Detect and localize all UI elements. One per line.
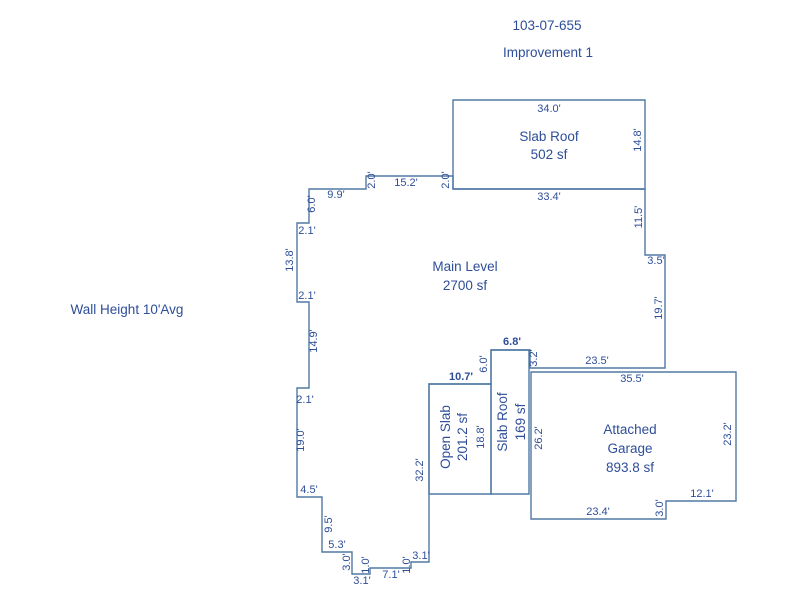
dim-label-6-8: 6.8' [503,336,521,348]
dim-label-5-3: 5.3' [328,539,345,551]
area-label-garage-name-1: Attached [603,422,656,437]
dim-label-1-0-b: 1.0' [401,556,413,573]
area-label-slab-roof-mid-sf: 169 sf [513,403,528,440]
dim-label-15-2: 15.2' [394,177,418,189]
dim-label-3-2: 3.2' [528,349,540,366]
improvement-title: Improvement 1 [503,45,593,60]
main-level-outline [297,176,665,574]
dim-label-3-5: 3.5' [647,255,664,267]
dim-label-23-4: 23.4' [586,506,610,518]
dim-label-32-2: 32.2' [414,458,426,482]
dim-label-18-8: 18.8' [475,425,487,449]
dim-label-26-2: 26.2' [533,426,545,450]
area-label-slab-roof-top-name: Slab Roof [519,129,579,144]
dim-label-3-1-b: 3.1' [412,550,429,562]
parcel-number: 103-07-655 [512,18,581,33]
area-label-main-level-name: Main Level [432,259,497,274]
area-label-slab-roof-top-sf: 502 sf [531,147,568,162]
area-label-garage-sf: 893.8 sf [606,460,654,475]
area-label-main-level-sf: 2700 sf [443,278,488,293]
property-sketch-canvas: 103-07-655 Improvement 1 Wall Height 10'… [0,0,800,600]
wall-height-note: Wall Height 10'Avg [71,302,184,317]
dim-label-9-5: 9.5' [323,515,335,532]
dim-label-slab-bottom: 33.4' [537,191,561,203]
dim-label-6-0-mid: 6.0' [478,355,490,372]
dim-label-step-2-0-right: 2.0' [440,171,452,188]
dim-label-3-1-a: 3.1' [353,575,370,587]
dim-label-1-0-a: 1.0' [360,556,372,573]
dim-label-35-5: 35.5' [620,373,644,385]
dim-label-12-1: 12.1' [690,488,714,500]
dim-label-3-0-left: 3.0' [341,553,353,570]
area-label-garage-name-2: Garage [607,441,652,456]
dim-label-2-1-a: 2.1' [298,225,315,237]
dim-label-11-5: 11.5' [633,206,645,229]
dim-label-6-0-left: 6.0' [306,195,318,212]
dim-label-10-7: 10.7' [449,371,473,383]
area-label-slab-roof-mid-name: Slab Roof [495,392,510,452]
area-label-open-slab-sf: 201.2 sf [455,413,470,461]
dim-label-2-1-b: 2.1' [298,290,315,302]
dim-label-9-9: 9.9' [327,189,344,201]
dim-label-4-5: 4.5' [300,484,317,496]
area-label-open-slab-name: Open Slab [438,405,453,469]
dim-label-14-9: 14.9' [308,329,320,353]
dim-label-step-2-0-left: 2.0' [366,171,378,188]
dim-label-2-1-c: 2.1' [296,394,313,406]
dim-label-23-5: 23.5' [585,355,609,367]
dim-label-7-1: 7.1' [382,569,399,581]
dim-label-19-0: 19.0' [295,428,307,452]
dim-label-3-0-garage: 3.0' [654,499,666,516]
dim-label-13-8: 13.8' [284,248,296,272]
dim-label-19-7: 19.7' [653,296,665,320]
dim-label-23-2: 23.2' [722,422,734,446]
dim-label-slab-right: 14.8' [632,128,644,152]
dim-label-slab-top: 34.0' [537,103,561,115]
